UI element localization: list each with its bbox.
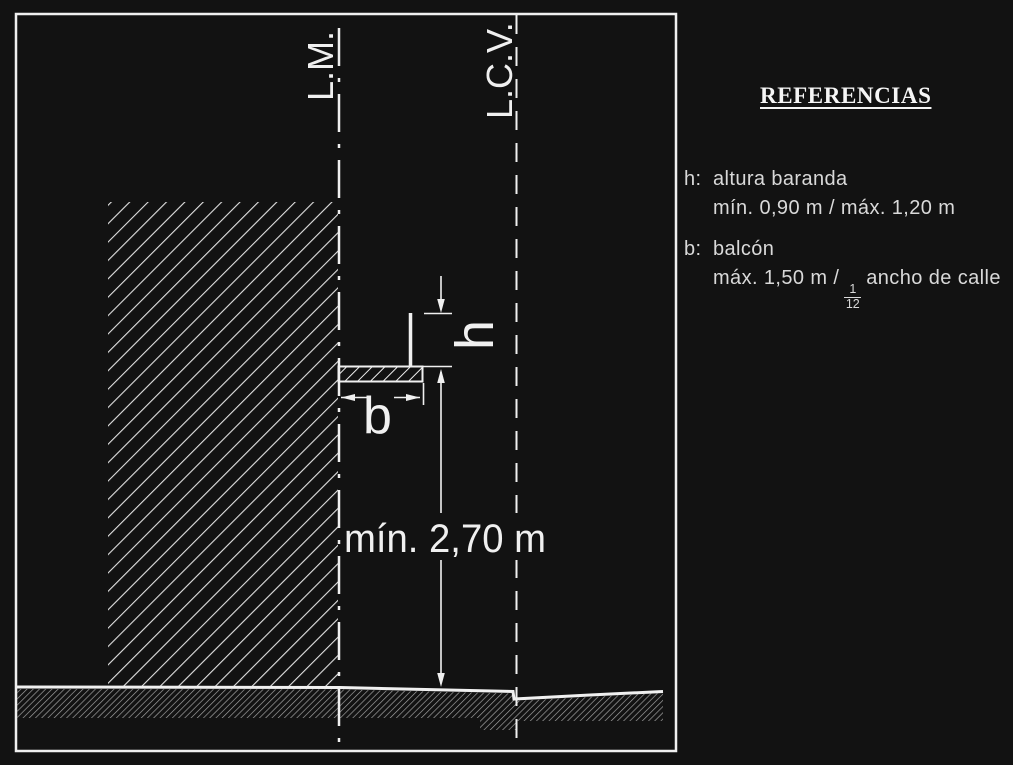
reference-body-h: altura baranda mín. 0,90 m / máx. 1,20 m [713, 165, 955, 223]
reference-item-h: h: altura baranda mín. 0,90 m / máx. 1,2… [684, 165, 955, 223]
reference-detail-h: mín. 0,90 m / máx. 1,20 m [713, 194, 955, 223]
reference-term-b: balcón [713, 235, 1001, 264]
balcony-slab [339, 367, 423, 382]
fraction-numerator: 1 [849, 283, 856, 297]
fraction-one-twelfth: 112 [844, 283, 861, 312]
reference-detail-b-prefix: máx. 1,50 m / [713, 267, 839, 289]
reference-item-b: b: balcón máx. 1,50 m /112ancho de calle [684, 235, 1001, 312]
railing-height-symbol: h [445, 320, 505, 350]
reference-term-h: altura baranda [713, 165, 955, 194]
property-line-label: L.M. [300, 31, 341, 101]
reference-detail-b-suffix: ancho de calle [866, 267, 1001, 289]
reference-key-h: h: [684, 165, 713, 223]
balcony-depth-symbol: b [363, 387, 392, 445]
reference-body-b: balcón máx. 1,50 m /112ancho de calle [713, 235, 1001, 312]
building-wall-hatch [108, 202, 338, 688]
references-title: REFERENCIAS [760, 83, 931, 109]
section-drawing: L.M. L.C.V. h b mín. 2,70 m [0, 0, 1013, 765]
fraction-denominator: 12 [844, 297, 861, 312]
reference-key-b: b: [684, 235, 713, 312]
regulation-diagram-page: L.M. L.C.V. h b mín. 2,70 m REFERENCIAS … [0, 0, 1013, 765]
reference-detail-b: máx. 1,50 m /112ancho de calle [713, 264, 1001, 312]
clearance-dimension-label: mín. 2,70 m [344, 517, 546, 561]
street-line-label: L.C.V. [479, 22, 520, 119]
